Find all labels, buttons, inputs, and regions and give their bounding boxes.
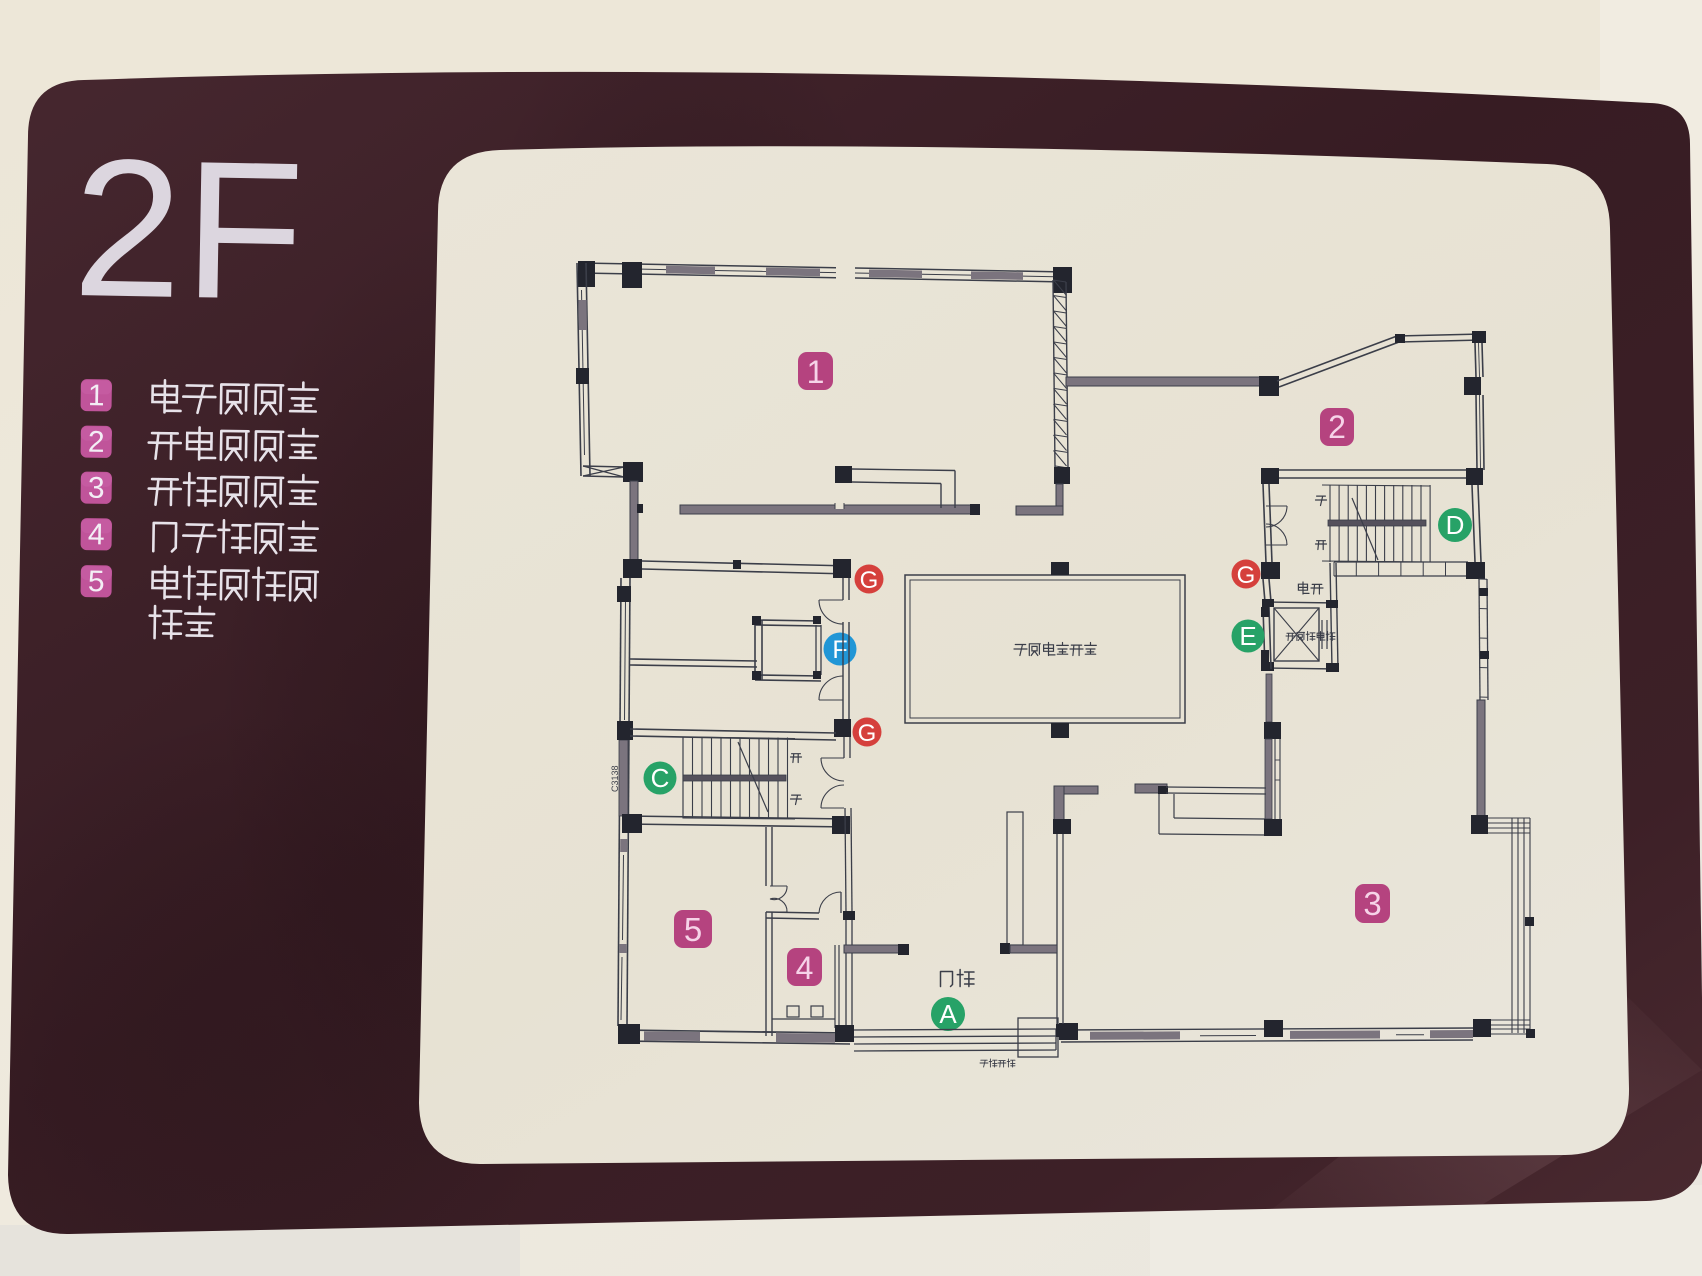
svg-text:A: A xyxy=(939,999,957,1029)
svg-text:4: 4 xyxy=(88,518,105,551)
svg-text:5: 5 xyxy=(684,911,702,948)
svg-text:C3138: C3138 xyxy=(610,765,620,792)
svg-text:3: 3 xyxy=(88,472,105,505)
svg-text:1: 1 xyxy=(807,354,825,390)
svg-text:D: D xyxy=(1446,510,1465,540)
svg-text:G: G xyxy=(858,720,877,747)
svg-text:G: G xyxy=(860,567,879,594)
svg-text:1: 1 xyxy=(88,379,105,412)
svg-text:2: 2 xyxy=(1328,409,1346,445)
svg-text:3: 3 xyxy=(1363,885,1381,922)
svg-text:F: F xyxy=(832,636,847,664)
svg-text:5: 5 xyxy=(88,565,105,598)
svg-text:C: C xyxy=(651,763,670,793)
svg-text:2: 2 xyxy=(88,426,105,459)
svg-text:2F: 2F xyxy=(71,118,308,341)
svg-text:E: E xyxy=(1239,621,1256,651)
svg-text:4: 4 xyxy=(796,950,814,986)
svg-text:G: G xyxy=(1237,562,1256,589)
